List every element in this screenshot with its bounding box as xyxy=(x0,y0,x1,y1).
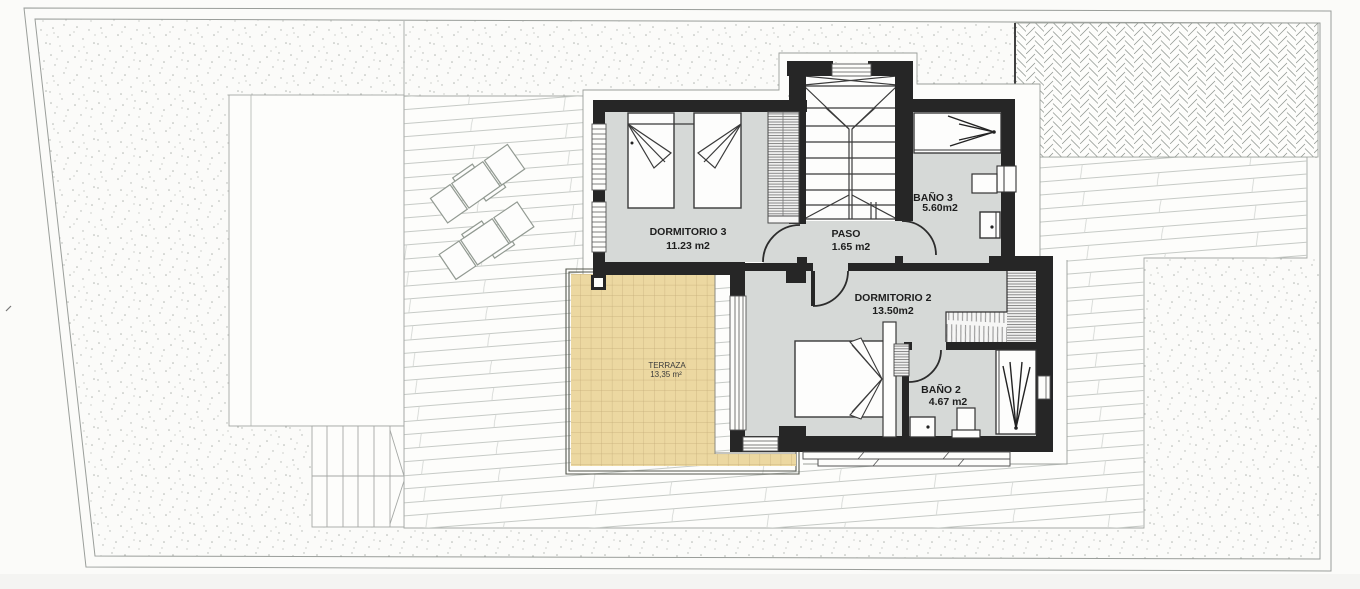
svg-text:13.50m2: 13.50m2 xyxy=(872,305,914,317)
svg-text:DORMITORIO 3: DORMITORIO 3 xyxy=(650,226,727,238)
svg-text:11.23 m2: 11.23 m2 xyxy=(666,240,710,252)
svg-text:PASO: PASO xyxy=(832,228,861,240)
svg-text:DORMITORIO 2: DORMITORIO 2 xyxy=(855,292,932,304)
svg-text:TERRAZA: TERRAZA xyxy=(648,361,686,370)
svg-text:4.67 m2: 4.67 m2 xyxy=(929,396,968,408)
svg-text:13,35 m²: 13,35 m² xyxy=(650,370,682,379)
svg-text:BAÑO 2: BAÑO 2 xyxy=(921,383,961,396)
svg-text:1.65 m2: 1.65 m2 xyxy=(832,241,871,253)
svg-text:5.60m2: 5.60m2 xyxy=(922,202,958,214)
